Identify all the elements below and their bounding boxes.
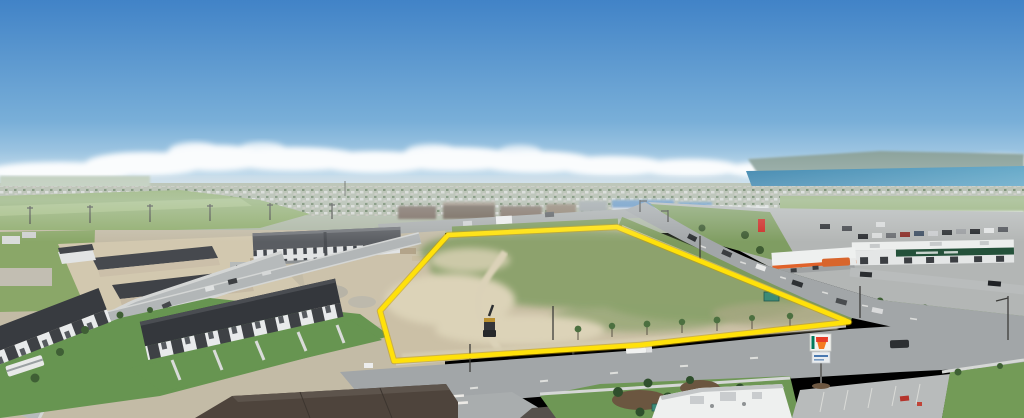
fuel-pump [812,266,818,270]
car [890,340,909,349]
rooftop-hvac-unit [690,396,704,404]
seven-eleven-sign [810,334,831,389]
shopping-cart [900,395,909,401]
aerial-photo [0,0,1024,418]
parking-lot [792,374,950,418]
sign-lower-panel [812,352,830,363]
strip-mall [852,240,1014,266]
seven-eleven-red-band [816,337,828,342]
fuel-pump [791,268,797,272]
material-stack [400,248,416,254]
sign-planter [812,383,830,389]
car [860,272,872,278]
car [364,363,373,368]
rooftop-hvac-unit [752,392,762,399]
shopping-cart [917,402,922,406]
seven-eleven-green-stripe [812,336,815,349]
haze-overlay [0,150,1024,242]
storage-lot [0,268,52,286]
rooftop-hvac-unit [720,392,736,401]
